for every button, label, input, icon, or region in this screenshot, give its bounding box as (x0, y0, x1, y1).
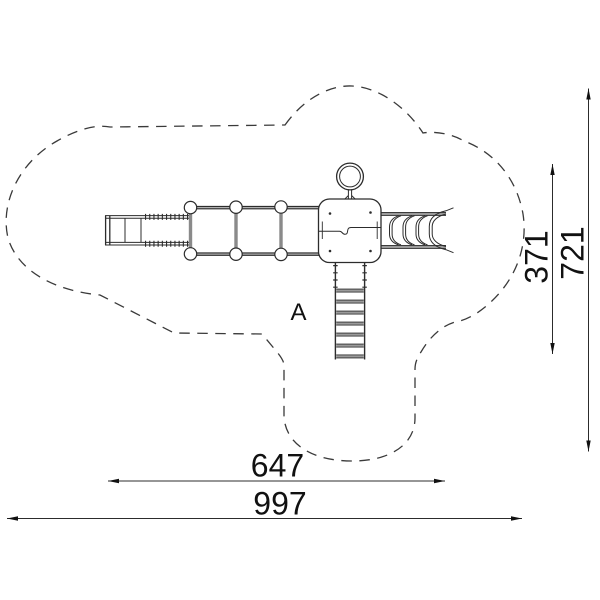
dim-value-inner-width: 647 (251, 448, 304, 484)
platform-bolt (369, 211, 372, 214)
dim-value-total-width: 997 (253, 486, 306, 522)
bridge-post (275, 248, 287, 260)
dim-arrow-bottom (550, 343, 554, 354)
safety-zone-path (6, 86, 524, 461)
bridge-post (230, 248, 242, 260)
rope-bridge (184, 201, 319, 261)
tower-platform (319, 199, 382, 263)
slide-wave-segment (416, 216, 428, 245)
dim-value-inner-height: 371 (519, 230, 555, 283)
item-label-a: A (290, 299, 306, 326)
ring-stem (345, 189, 356, 199)
dim-arrow-bottom (586, 441, 590, 452)
slide-wave-segment (403, 216, 415, 245)
dim-total-height: 721 (555, 89, 591, 452)
dim-inner-width: 647 (108, 448, 445, 484)
wave-slide (381, 208, 454, 253)
dim-arrow-left (7, 516, 18, 520)
dim-inner-height: 371 (519, 164, 555, 354)
dim-arrow-right (434, 479, 445, 483)
slide-wave-segment (390, 216, 402, 245)
safety-zone-outline (6, 86, 524, 461)
slide-exit-curve (429, 211, 446, 250)
dim-arrow-top (550, 164, 554, 175)
access-ladder (335, 263, 364, 360)
overhead-ring (337, 163, 364, 199)
platform-bolt (369, 250, 372, 253)
slide-exit-flares (446, 208, 454, 253)
bridge-rails (190, 206, 319, 255)
ramp-rails (105, 216, 190, 245)
platform-bolt (329, 212, 332, 215)
ramp-rungs (125, 218, 141, 242)
dim-value-total-height: 721 (555, 226, 591, 279)
bridge-post (230, 201, 242, 213)
ring-outer (337, 163, 364, 190)
bridge-post (184, 248, 196, 260)
dim-arrow-left (108, 479, 119, 483)
platform-bolt (329, 250, 332, 253)
climb-ramp (105, 216, 190, 245)
dim-arrow-top (586, 89, 590, 100)
ring-inner (340, 166, 361, 187)
dim-arrow-right (511, 516, 522, 520)
bridge-post (275, 201, 287, 213)
bridge-post (184, 201, 196, 213)
technical-drawing: A 647 997 371 721 (0, 0, 600, 600)
ramp-left-end (106, 216, 110, 245)
play-structure (105, 163, 454, 359)
dim-total-width: 997 (7, 486, 522, 522)
